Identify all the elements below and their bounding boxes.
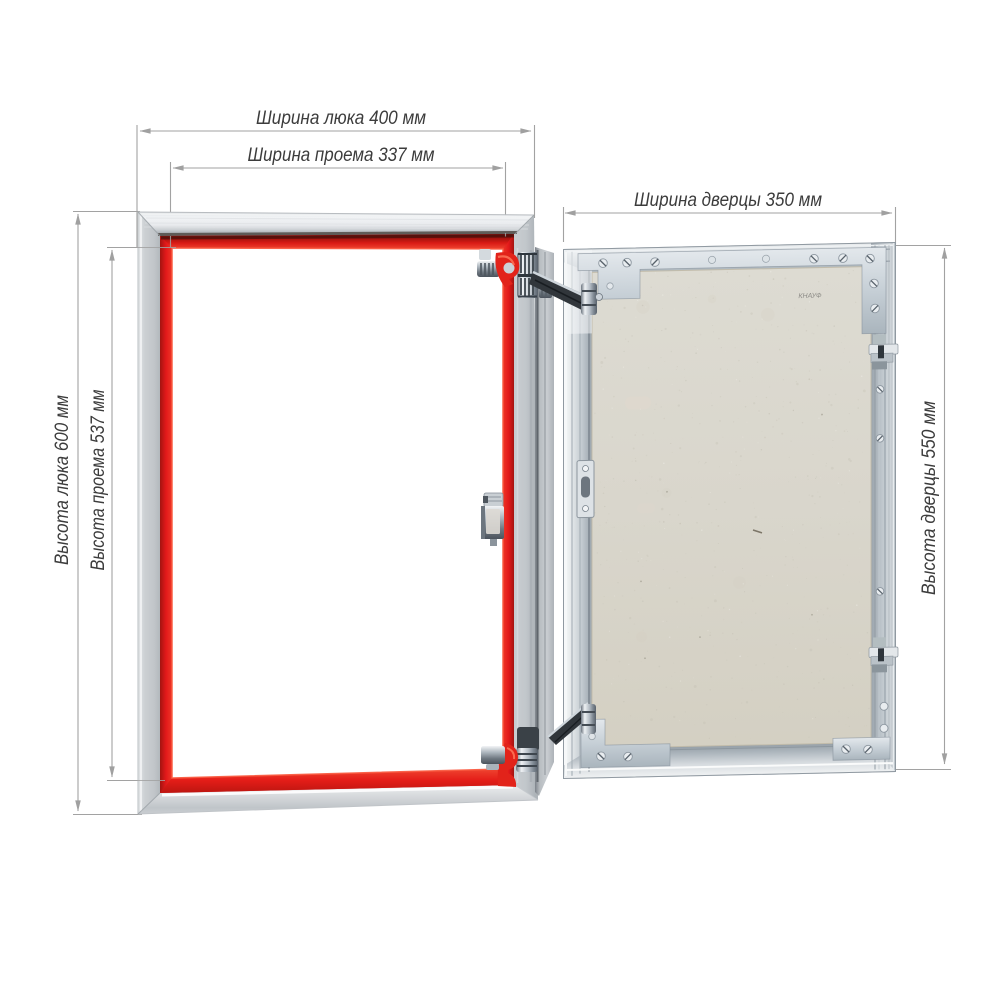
svg-text:Ширина люка 400 мм: Ширина люка 400 мм — [256, 107, 426, 129]
svg-text:Высота проема 537 мм: Высота проема 537 мм — [87, 390, 109, 571]
svg-text:Ширина дверцы 350 мм: Ширина дверцы 350 мм — [634, 189, 822, 211]
svg-text:КНАУФ: КНАУФ — [798, 293, 822, 300]
svg-text:Ширина проема 337 мм: Ширина проема 337 мм — [248, 144, 435, 166]
svg-text:Высота дверцы 550 мм: Высота дверцы 550 мм — [918, 401, 940, 595]
svg-text:Высота люка 600 мм: Высота люка 600 мм — [51, 395, 73, 565]
